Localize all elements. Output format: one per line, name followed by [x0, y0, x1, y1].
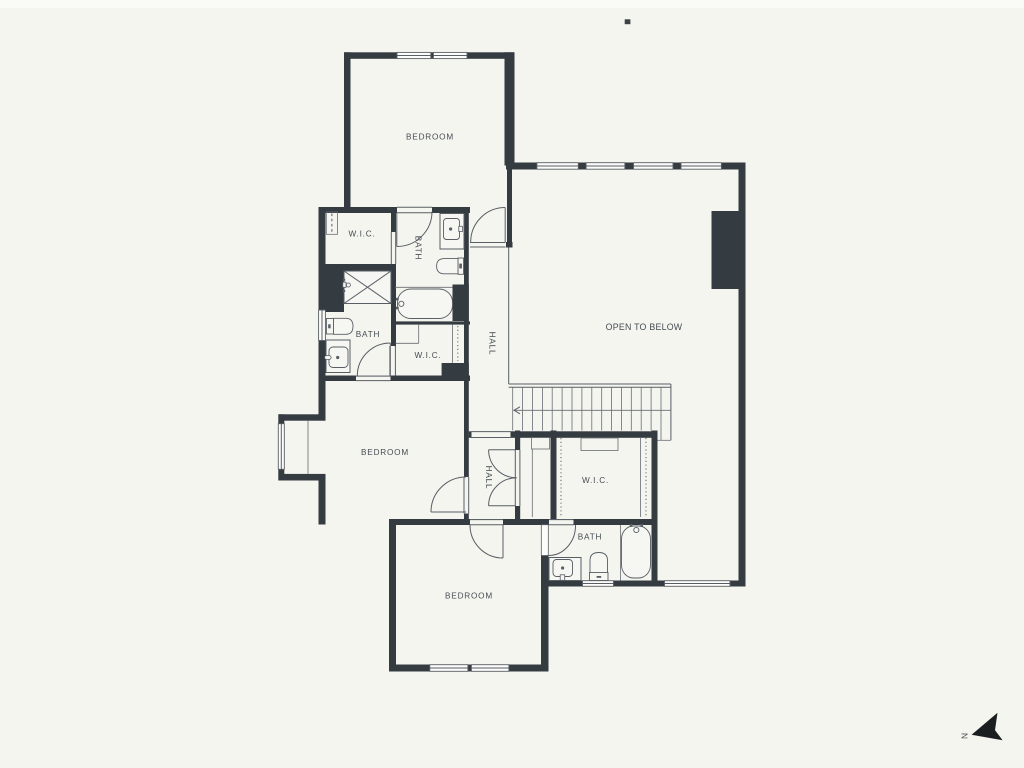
svg-text:BEDROOM: BEDROOM: [361, 448, 409, 457]
svg-text:W.I.C.: W.I.C.: [348, 230, 375, 239]
svg-text:BATH: BATH: [414, 236, 423, 260]
svg-text:BEDROOM: BEDROOM: [406, 133, 454, 142]
svg-text:W.I.C.: W.I.C.: [582, 476, 609, 485]
svg-text:BEDROOM: BEDROOM: [445, 592, 493, 601]
svg-text:HALL: HALL: [484, 466, 493, 490]
svg-text:W.I.C.: W.I.C.: [414, 351, 441, 360]
svg-text:BATH: BATH: [356, 330, 380, 339]
svg-text:BATH: BATH: [578, 533, 602, 542]
svg-text:OPEN TO BELOW: OPEN TO BELOW: [606, 322, 683, 332]
svg-text:HALL: HALL: [488, 332, 497, 356]
svg-text:N: N: [960, 733, 969, 739]
